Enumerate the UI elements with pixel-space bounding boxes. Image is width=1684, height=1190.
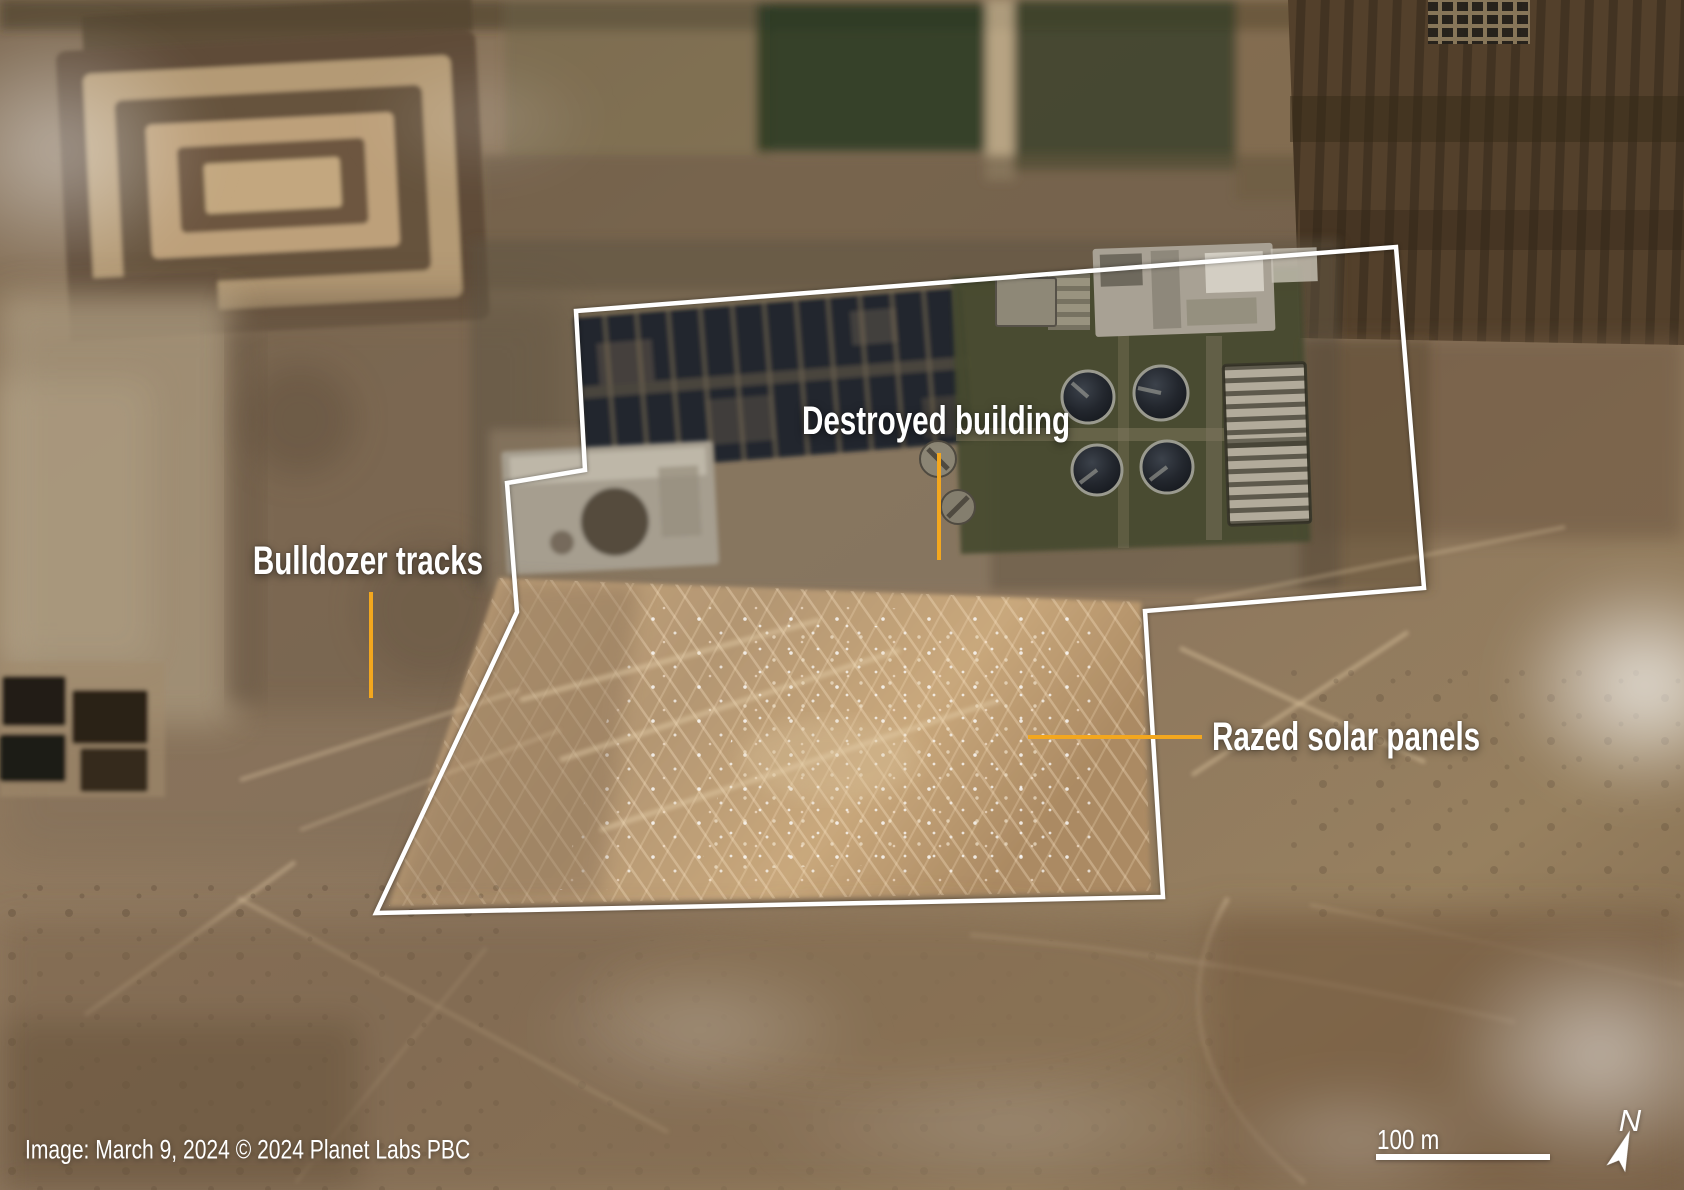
waste-pools xyxy=(0,662,165,797)
satellite-terrain xyxy=(0,0,1684,1190)
solar-array xyxy=(572,283,973,473)
destroyed-building-rubble xyxy=(501,441,719,576)
razed-area xyxy=(389,578,1151,906)
water-treatment-plant xyxy=(920,241,1319,554)
annotated-satellite-image: Destroyed building Bulldozer tracks Raze… xyxy=(0,0,1684,1190)
